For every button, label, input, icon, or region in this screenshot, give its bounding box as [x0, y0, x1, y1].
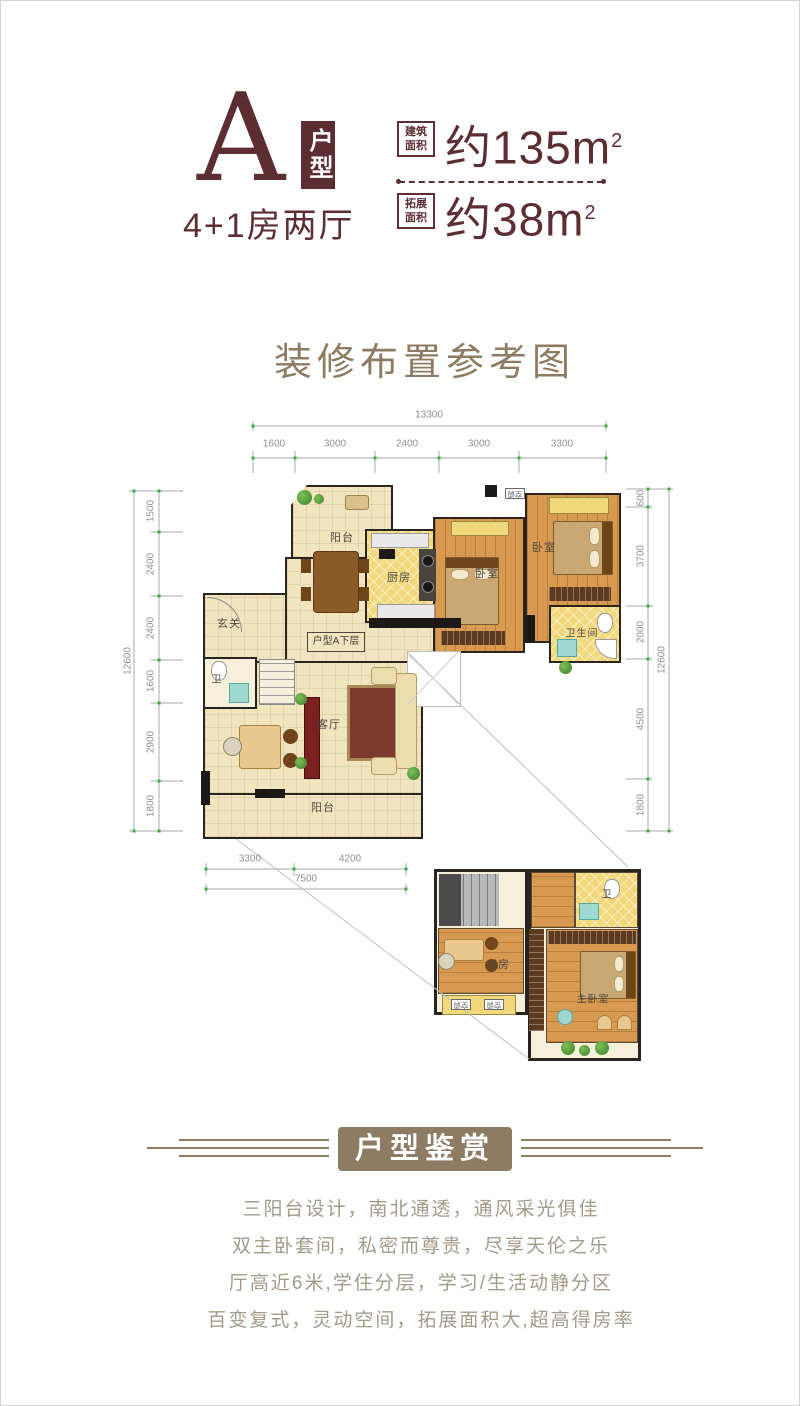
dim-left-seg: 2400: [146, 617, 157, 639]
dim-right-seg: 2000: [636, 621, 647, 643]
feature-line: 双主卧套间，私密而尊贵，尽享天伦之乐: [121, 1236, 721, 1258]
room-label-balcony-top: 阳台: [330, 529, 354, 545]
metric-built-area-label: 建筑 面积: [397, 121, 435, 157]
upper-ac-label: 空调: [451, 999, 471, 1010]
floor-tag: 户型A下层: [307, 632, 365, 652]
feature-line: 三阳台设计，南北通透，通风采光俱佳: [121, 1199, 721, 1221]
dim-left-seg: 2400: [146, 553, 157, 575]
dim-right-seg: 3700: [636, 545, 647, 567]
metric-extended-area-label: 拓展 面积: [397, 193, 435, 229]
dim-bottom-total: 7500: [295, 874, 317, 885]
unit-layout-text: 4+1房两厅: [183, 198, 355, 247]
room-label-upper-toilet: 卫: [602, 886, 613, 901]
banner-ornament-line: [147, 1147, 329, 1149]
ac-platform-label: 空调: [505, 488, 525, 499]
room-label-kitchen: 厨房: [387, 569, 411, 585]
room-label-bathroom: 卫生间: [566, 625, 599, 640]
dim-right-total: 12600: [657, 646, 668, 674]
feature-line: 厅高近6米,学住分层，学习/生活动静分区: [121, 1273, 721, 1295]
dim-left-total: 12600: [123, 647, 134, 675]
banner-ornament-line: [179, 1155, 329, 1157]
dim-right-seg: 600: [636, 490, 647, 507]
room-label-living: 客厅: [317, 716, 341, 732]
room-label-master-bedroom: 主卧室: [577, 991, 610, 1006]
metric-built-area: 建筑 面积 约135m2: [397, 121, 623, 167]
room-label-entry: 玄关: [217, 615, 241, 631]
banner-ornament-line: [179, 1139, 329, 1141]
banner-ornament-line: [521, 1147, 703, 1149]
dim-top-seg: 1600: [263, 439, 285, 450]
banner-ornament-line: [521, 1139, 671, 1141]
dim-right-seg: 4500: [636, 708, 647, 730]
unit-type-badge: 户型: [301, 121, 335, 189]
void-cross-lines: [408, 652, 458, 704]
banner-ornament-line: [521, 1155, 671, 1157]
dim-bottom-seg: 4200: [339, 854, 361, 865]
dim-top-seg: 3000: [468, 439, 490, 450]
dim-right-seg: 1800: [636, 794, 647, 816]
dim-top-seg: 3000: [324, 439, 346, 450]
room-label-balcony-bottom: 阳台: [311, 799, 335, 815]
dim-bottom-seg: 3300: [239, 854, 261, 865]
metric-extended-area: 拓展 面积 约38m2: [397, 193, 597, 239]
feature-list: 三阳台设计，南北通透，通风采光俱佳 双主卧套间，私密而尊贵，尽享天伦之乐 厅高近…: [121, 1199, 721, 1347]
unit-type-letter: A: [197, 77, 285, 199]
dim-left-seg: 1600: [146, 670, 157, 692]
section-title: 装修布置参考图: [274, 331, 575, 386]
room-label-bedroom1: 卧室: [475, 565, 499, 581]
dim-top-seg: 2400: [396, 439, 418, 450]
dim-left-seg: 1500: [146, 500, 157, 522]
dim-left-seg: 1800: [146, 795, 157, 817]
upper-ac-label: 空调: [484, 999, 504, 1010]
metric-built-area-value: 约135m2: [445, 121, 623, 167]
metric-extended-area-value: 约38m2: [445, 193, 597, 239]
room-label-toilet: 卫: [212, 671, 223, 686]
dim-left-seg: 2900: [146, 731, 157, 753]
dim-top-seg: 3300: [551, 439, 573, 450]
floorplan-poster: A 户型 4+1房两厅 建筑 面积 约135m2 拓展 面积 约38m2 装修布…: [0, 0, 800, 1406]
room-label-study: 书房: [486, 956, 510, 972]
dashed-divider: [399, 181, 603, 183]
dimension-tick-marks: [133, 425, 671, 891]
banner-title: 户型鉴赏: [338, 1127, 512, 1171]
feature-line: 百变复式，灵动空间，拓展面积大,超高得房率: [121, 1310, 721, 1332]
room-label-bedroom2: 卧室: [532, 539, 556, 555]
dim-top-total: 13300: [415, 410, 443, 421]
